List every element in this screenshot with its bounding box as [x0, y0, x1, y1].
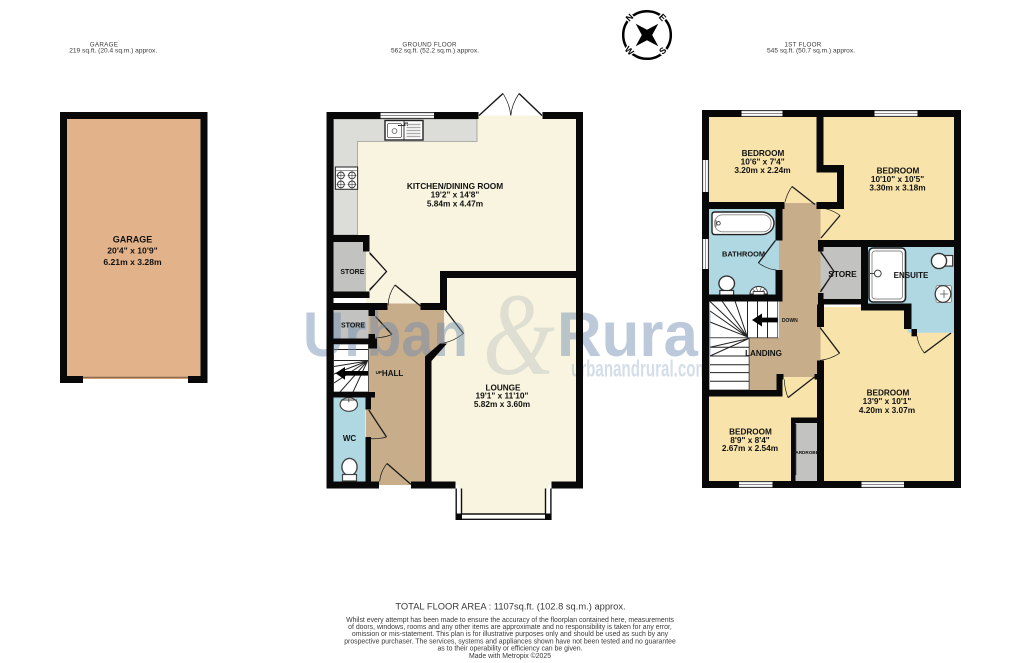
- svg-text:of doors, windows, rooms and a: of doors, windows, rooms and any other i…: [348, 624, 672, 631]
- svg-text:3.20m x 2.24m: 3.20m x 2.24m: [734, 165, 790, 175]
- svg-text:prospective purchaser. The ser: prospective purchaser. The services, sys…: [344, 638, 676, 645]
- svg-text:HALL: HALL: [382, 369, 403, 378]
- svg-text:&: &: [483, 269, 555, 400]
- svg-text:219 sq.ft. (20.4 sq.m.) approx: 219 sq.ft. (20.4 sq.m.) approx.: [69, 48, 157, 55]
- svg-text:5.84m x 4.47m: 5.84m x 4.47m: [427, 198, 483, 208]
- svg-text:6.21m x 3.28m: 6.21m x 3.28m: [103, 257, 162, 267]
- svg-text:TOTAL FLOOR AREA : 1107sq.ft.: TOTAL FLOOR AREA : 1107sq.ft. (102.8 sq.…: [395, 602, 625, 612]
- svg-text:Made with Metropix ©2025: Made with Metropix ©2025: [469, 652, 551, 660]
- svg-text:Whilst every attempt has been: Whilst every attempt has been made to en…: [346, 617, 674, 624]
- svg-text:ENSUITE: ENSUITE: [894, 271, 929, 280]
- svg-text:DOWN: DOWN: [782, 318, 798, 324]
- svg-text:545 sq.ft. (50.7 sq.m.) approx: 545 sq.ft. (50.7 sq.m.) approx.: [767, 48, 855, 55]
- svg-text:omission or mis-statement. Thi: omission or mis-statement. This plan is …: [352, 631, 669, 638]
- svg-text:STORE: STORE: [340, 269, 364, 276]
- svg-text:WARDROBE: WARDROBE: [791, 450, 818, 455]
- svg-text:3.30m x 3.18m: 3.30m x 3.18m: [869, 183, 925, 193]
- svg-text:STORE: STORE: [828, 269, 857, 279]
- svg-text:WC: WC: [343, 434, 357, 443]
- svg-text:5.82m x 3.60m: 5.82m x 3.60m: [474, 399, 530, 409]
- svg-text:4.20m x 3.07m: 4.20m x 3.07m: [859, 405, 915, 415]
- svg-text:BATHROOM: BATHROOM: [722, 250, 765, 259]
- svg-text:LANDING: LANDING: [745, 349, 782, 358]
- svg-text:urbanandrural.com: urbanandrural.com: [571, 356, 709, 382]
- svg-text:as to their operability or eff: as to their operability or efficiency ca…: [437, 646, 582, 653]
- svg-text:GARAGE: GARAGE: [113, 234, 153, 244]
- svg-text:562 sq.ft. (52.2 sq.m.) approx: 562 sq.ft. (52.2 sq.m.) approx.: [391, 48, 479, 55]
- svg-text:20'4" x 10'9": 20'4" x 10'9": [107, 246, 157, 256]
- svg-text:STORE: STORE: [341, 323, 365, 330]
- svg-text:2.67m x 2.54m: 2.67m x 2.54m: [722, 443, 778, 453]
